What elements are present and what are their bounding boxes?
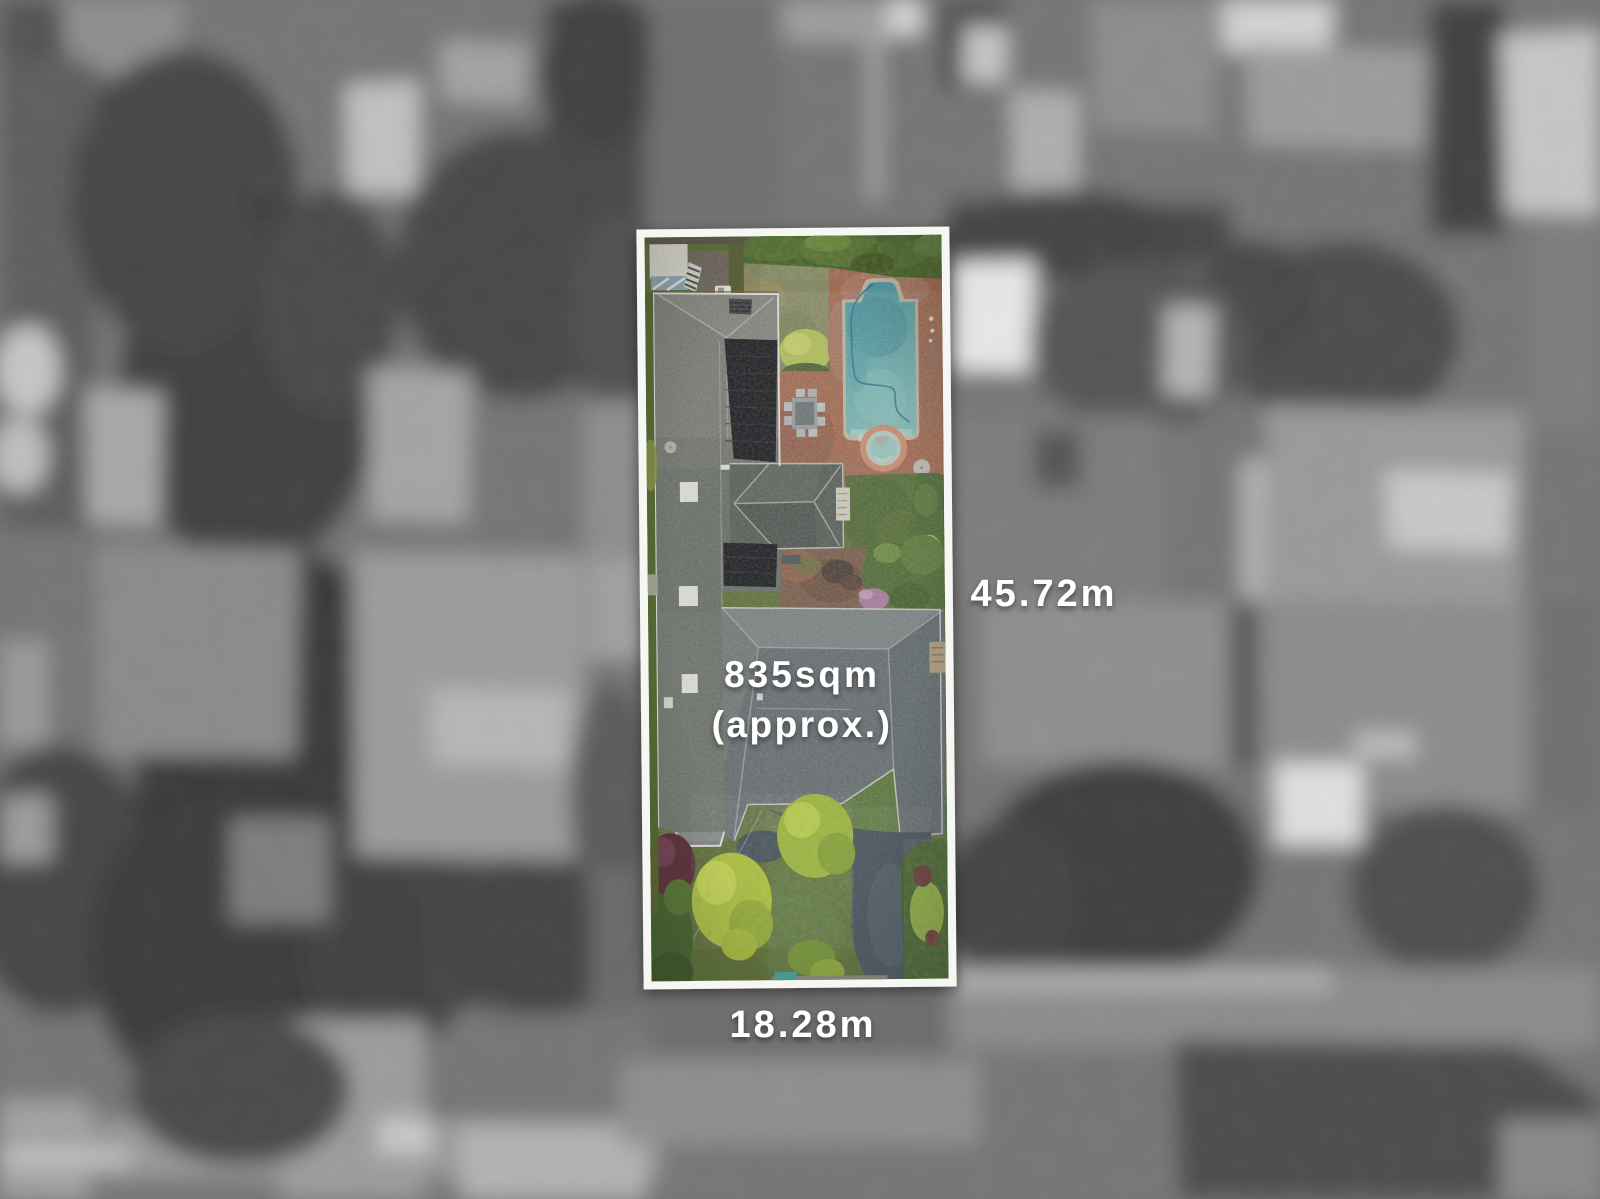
svg-text:18.28m: 18.28m	[730, 1004, 877, 1046]
svg-text:(approx.): (approx.)	[712, 704, 893, 745]
svg-text:835sqm: 835sqm	[724, 654, 880, 695]
svg-text:45.72m: 45.72m	[971, 573, 1118, 615]
